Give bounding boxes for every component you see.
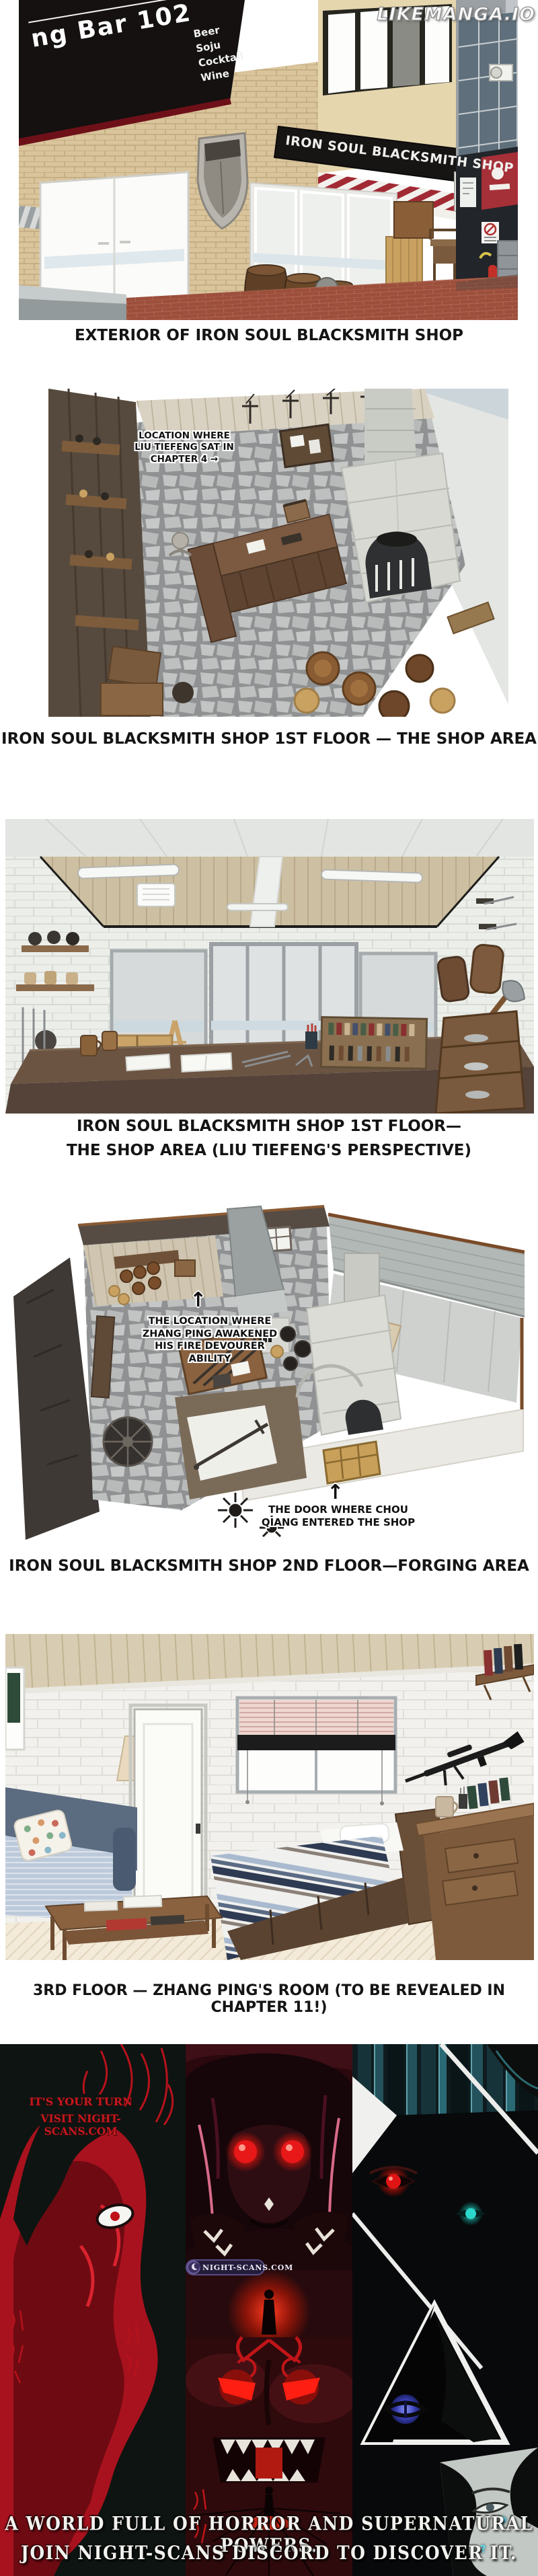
floor3-bedroom-render (5, 1634, 534, 1960)
mug (436, 1797, 453, 1817)
caption-floor1-pov-line2: THE SHOP AREA (LIU TIEFENG'S PERSPECTIVE… (0, 1142, 538, 1159)
floor1-art (48, 389, 508, 717)
promo-middle-art (186, 2044, 352, 2576)
promo-left-panel: IT'S YOUR TURN VISIT NIGHT-SCANS.COM (0, 2044, 186, 2576)
side-rack (436, 1011, 525, 1114)
awaken-arrow: ↑ (190, 1288, 206, 1312)
bar-sign-menu: Beer Soju Cocktail Wine (192, 19, 247, 85)
floor1-pov-render (5, 819, 534, 1114)
teal-eye-panel (456, 2201, 486, 2226)
pegboard (321, 1017, 426, 1069)
no-smoking-sign (482, 222, 499, 243)
magazine (124, 1896, 162, 1908)
exterior-render: ar ng Bar 102 Beer Soju Cocktail Wine IR… (19, 0, 518, 320)
liu-tiefeng-location-label: LOCATION WHERE LIU TIEFENG SAT IN CHAPTE… (126, 430, 242, 465)
caption-floor3: 3RD FLOOR — ZHANG PING'S ROOM (TO BE REV… (0, 1982, 538, 2016)
awaken-location-label: THE LOCATION WHERE ZHANG PING AWAKENED H… (133, 1315, 286, 1365)
promo-right-panel: ? ? (352, 2044, 538, 2576)
manga-page: ar ng Bar 102 Beer Soju Cocktail Wine IR… (0, 0, 538, 2576)
promo-footer-2: JOIN NIGHT-SCANS DISCORD TO DISCOVER IT. (0, 2542, 538, 2563)
floor1-pov-art (5, 819, 534, 1114)
caption-floor1-top: IRON SOUL BLACKSMITH SHOP 1ST FLOOR — TH… (0, 730, 538, 748)
promo-right-art (352, 2044, 538, 2576)
floor2-render: ↑ THE LOCATION WHERE ZHANG PING AWAKENED… (13, 1196, 525, 1540)
floor1-topdown-render: LOCATION WHERE LIU TIEFENG SAT IN CHAPTE… (48, 389, 508, 717)
caption-floor2: IRON SOUL BLACKSMITH SHOP 2ND FLOOR—FORG… (0, 1557, 538, 1575)
promo-tagline-1: IT'S YOUR TURN (13, 2095, 148, 2108)
floor2-art (13, 1196, 525, 1540)
badge-label: NIGHT-SCANS.COM (202, 2263, 293, 2272)
notice-board (280, 424, 334, 467)
red-eye-panel (370, 2165, 417, 2197)
night-scans-promo: IT'S YOUR TURN VISIT NIGHT-SCANS.COM (0, 2044, 538, 2576)
site-watermark: LIKEMANGA.IO (356, 4, 535, 25)
bedroom-door (130, 1705, 206, 1923)
entry-door-label: THE DOOR WHERE CHOU QIANG ENTERED THE SH… (247, 1504, 429, 1529)
bedroom-art (5, 1634, 534, 1960)
triangle-eye-panel (364, 2305, 506, 2442)
promo-middle-panel (186, 2044, 352, 2576)
window (237, 1698, 395, 1805)
spiral-staircase (104, 1417, 152, 1466)
caption-floor1-pov-line1: IRON SOUL BLACKSMITH SHOP 1ST FLOOR— (0, 1118, 538, 1135)
creature-silhouette (0, 2094, 158, 2576)
picture-frame (5, 1668, 24, 1750)
caption-exterior: EXTERIOR OF IRON SOUL BLACKSMITH SHOP (0, 327, 538, 344)
promo-tagline-2: VISIT NIGHT-SCANS.COM (4, 2112, 157, 2138)
door-arrow: ↑ (327, 1481, 344, 1504)
red-book (106, 1918, 147, 1930)
